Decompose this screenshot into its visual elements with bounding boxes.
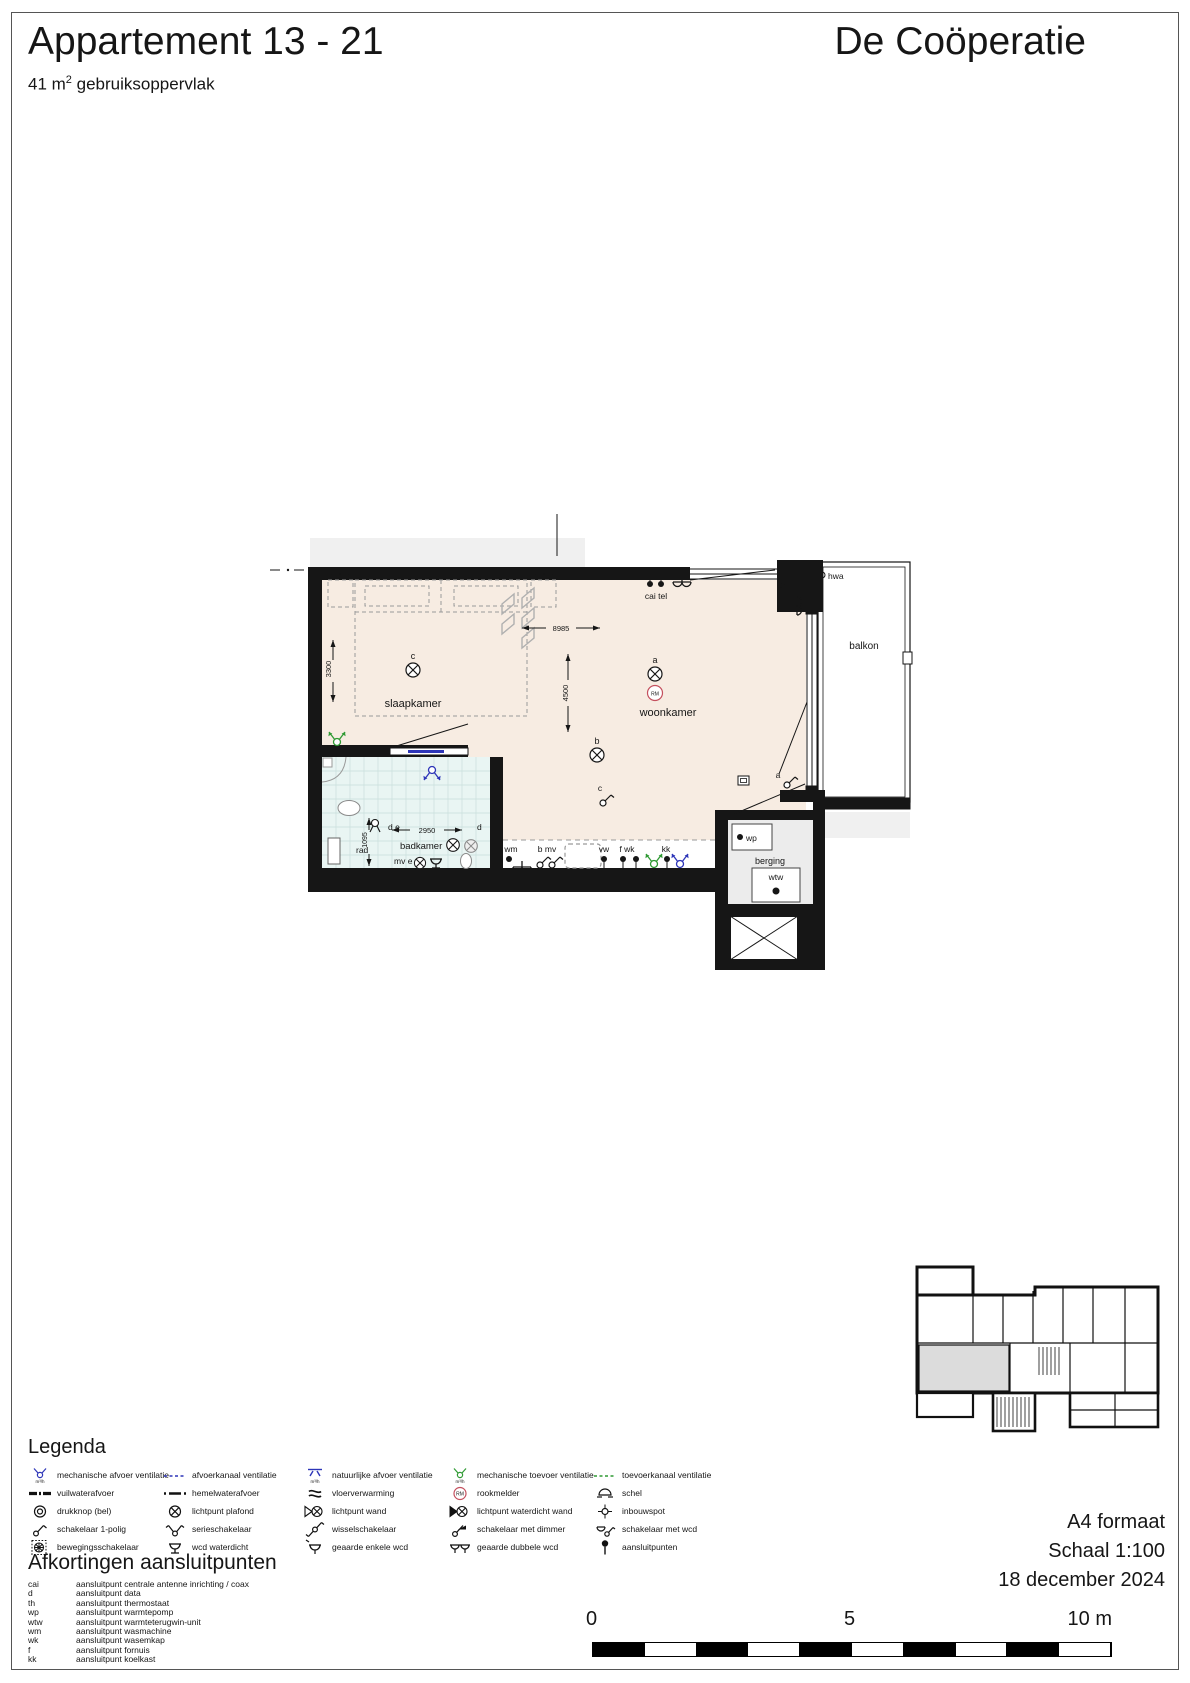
floor-heating-icon (303, 1485, 327, 1502)
svg-text:2950: 2950 (419, 826, 436, 835)
legend: Legenda m³/h mechanische afvoer ventilat… (28, 1436, 728, 1556)
area-suffix: gebruiksoppervlak (72, 75, 215, 94)
series-switch-icon (163, 1521, 187, 1538)
area-value: 41 m (28, 75, 66, 94)
scale-five: 5 (844, 1608, 855, 1631)
grounded-single-socket-icon (303, 1539, 327, 1556)
scale-segment (800, 1643, 851, 1656)
two-way-switch-icon (303, 1521, 327, 1538)
supply-duct-icon (593, 1467, 617, 1484)
floor-plan-drawing: c a RM b a c cai tel th hwa wm b mv vw (270, 512, 930, 974)
svg-text:kk: kk (662, 844, 671, 854)
rainwater-line-icon (163, 1485, 187, 1502)
connection-point-icon (593, 1539, 617, 1556)
scale-segment (1058, 1643, 1111, 1656)
svg-text:vw: vw (599, 844, 610, 854)
abbr-row: kkaansluitpunt koelkast (28, 1655, 277, 1664)
wall-light-icon (465, 840, 478, 853)
svg-text:b mv: b mv (538, 844, 557, 854)
project-name: De Coöperatie (835, 20, 1086, 64)
legend-item: RM rookmelder (448, 1485, 593, 1502)
natural-exhaust-vent-icon: m³/h (303, 1467, 327, 1484)
abbr-row: wkaansluitpunt wasemkap (28, 1636, 277, 1645)
scale-ten: 10 m (1068, 1608, 1112, 1631)
wtw-unit: wtw (752, 868, 800, 902)
legend-item: m³/h mechanische toevoer ventilatie (448, 1467, 593, 1484)
legend-item: toevoerkanaal ventilatie (593, 1467, 713, 1484)
paper-format: A4 formaat (998, 1508, 1165, 1537)
ceiling-light-icon (648, 667, 662, 681)
drawing-date: 18 december 2024 (998, 1566, 1165, 1595)
sheet-info: A4 formaat Schaal 1:100 18 december 2024 (998, 1508, 1165, 1595)
svg-text:3300: 3300 (324, 661, 333, 678)
page-subtitle: 41 m2 gebruiksoppervlak (28, 74, 215, 95)
wall-light-legend-icon (303, 1503, 327, 1520)
ceiling-light-icon (414, 857, 425, 868)
legend-item: schakelaar met dimmer (448, 1521, 593, 1538)
legend-item: inbouwspot (593, 1503, 713, 1520)
scale-segment (644, 1643, 697, 1656)
svg-text:m³/h: m³/h (36, 1479, 45, 1484)
drawing-scale: Schaal 1:100 (998, 1537, 1165, 1566)
legend-item: m³/h natuurlijke afvoer ventilatie (303, 1467, 448, 1484)
scale-bar-segments (592, 1642, 1112, 1657)
mech-supply-vent-icon: m³/h (448, 1467, 472, 1484)
thermostat-point (788, 581, 795, 588)
svg-text:RM: RM (456, 1491, 464, 1497)
room-label-slaapkamer: slaapkamer (385, 698, 442, 710)
legend-item: geaarde dubbele wcd (448, 1539, 593, 1556)
svg-text:wm: wm (503, 844, 517, 854)
scale-segment (1007, 1643, 1058, 1656)
ceiling-light-icon (406, 663, 420, 677)
exhaust-duct-icon (163, 1467, 187, 1484)
svg-text:f wk: f wk (619, 844, 635, 854)
smoke-detector-legend-icon: RM (448, 1485, 472, 1502)
ceiling-light-legend-icon (163, 1503, 187, 1520)
scale-segment (904, 1643, 955, 1656)
smoke-detector-icon: RM (648, 686, 663, 701)
abbreviations-title: Afkortingen aansluitpunten (28, 1551, 277, 1575)
svg-text:4500: 4500 (561, 685, 570, 702)
legend-item: m³/h mechanische afvoer ventilatie (28, 1467, 163, 1484)
intercom-icon (738, 776, 749, 785)
scale-bar: 0 5 10 m (592, 1608, 1112, 1657)
sewage-line-icon (28, 1485, 52, 1502)
balcony-outline (818, 562, 912, 809)
svg-text:m³/h: m³/h (456, 1479, 465, 1484)
light-letter: a (652, 655, 657, 665)
legend-title: Legenda (28, 1436, 728, 1459)
legend-item: hemelwaterafvoer (163, 1485, 303, 1502)
scale-segment (593, 1643, 644, 1656)
legend-item: serieschakelaar (163, 1521, 303, 1538)
legend-item: schakelaar met wcd (593, 1521, 713, 1538)
hwa-label: hwa (828, 571, 844, 581)
legend-item: afvoerkanaal ventilatie (163, 1467, 303, 1484)
scale-segment (955, 1643, 1008, 1656)
legend-item: schel (593, 1485, 713, 1502)
heatpump-point: wp (732, 824, 772, 850)
building-overview-plan (915, 1265, 1160, 1487)
scale-segment (851, 1643, 904, 1656)
legend-item: vloerverwarming (303, 1485, 448, 1502)
svg-text:m³/h: m³/h (311, 1479, 320, 1484)
svg-text:wtw: wtw (768, 872, 785, 882)
svg-text:RM: RM (651, 692, 659, 698)
recessed-spot-icon (593, 1503, 617, 1520)
legend-item: vuilwaterafvoer (28, 1485, 163, 1502)
ceiling-light-icon (447, 839, 460, 852)
page-title: Appartement 13 - 21 (28, 20, 384, 64)
switch-with-socket-icon (593, 1521, 617, 1538)
dimmer-switch-icon (448, 1521, 472, 1538)
room-label-badkamer: badkamer (400, 841, 442, 852)
legend-item: lichtpunt waterdicht wand (448, 1503, 593, 1520)
scale-bar-labels: 0 5 10 m (592, 1608, 1112, 1642)
light-letter: c (411, 651, 416, 661)
room-label-balkon: balkon (849, 641, 878, 652)
waterproof-wall-light-icon (448, 1503, 472, 1520)
mv-e-label: mv e (394, 856, 413, 866)
elevator-shaft (730, 916, 798, 960)
legend-item: geaarde enkele wcd (303, 1539, 448, 1556)
floor-plan: c a RM b a c cai tel th hwa wm b mv vw (270, 512, 930, 974)
legend-item: aansluitpunten (593, 1539, 713, 1556)
legend-item: wisselschakelaar (303, 1521, 448, 1538)
switch-letter: a (776, 770, 781, 780)
push-button-icon (28, 1503, 52, 1520)
thermostat-label: th (779, 580, 786, 590)
room-label-woonkamer: woonkamer (639, 707, 697, 719)
light-letter: b (594, 736, 599, 746)
abbr-row: caiaansluitpunt centrale antenne inricht… (28, 1580, 277, 1589)
window-north (690, 569, 777, 580)
scale-zero: 0 (586, 1608, 597, 1631)
highlighted-unit (919, 1345, 1009, 1391)
svg-text:1095: 1095 (362, 832, 369, 848)
bell-icon (593, 1485, 617, 1502)
legend-item: lichtpunt wand (303, 1503, 448, 1520)
scale-segment (747, 1643, 800, 1656)
room-label-berging: berging (755, 856, 785, 866)
svg-text:wp: wp (745, 833, 757, 843)
legend-item: drukknop (bel) (28, 1503, 163, 1520)
svg-text:8985: 8985 (553, 624, 570, 633)
d-label: d (477, 822, 482, 832)
overview-drawing (915, 1265, 1160, 1487)
legend-item: lichtpunt plafond (163, 1503, 303, 1520)
legend-item: schakelaar 1-polig (28, 1521, 163, 1538)
cai-tel-label: cai tel (645, 591, 667, 601)
abbreviations: Afkortingen aansluitpunten caiaansluitpu… (28, 1551, 277, 1665)
scale-segment (697, 1643, 748, 1656)
mech-exhaust-vent-icon: m³/h (28, 1467, 52, 1484)
switch-1pole-icon (28, 1521, 52, 1538)
grounded-double-socket-icon (448, 1539, 472, 1556)
ceiling-light-icon (590, 748, 604, 762)
